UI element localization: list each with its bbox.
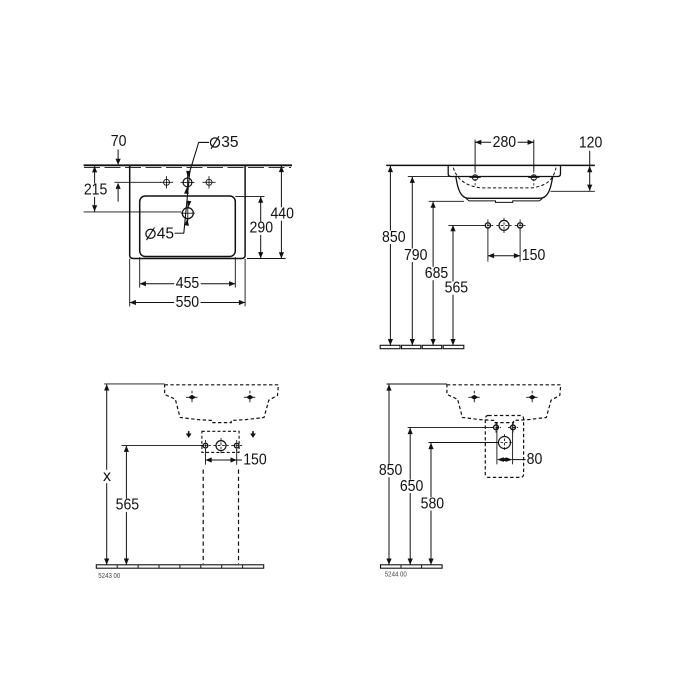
svg-text:45: 45 (157, 225, 174, 242)
svg-text:120: 120 (579, 135, 603, 152)
svg-text:5243 00: 5243 00 (98, 571, 120, 580)
svg-text:790: 790 (404, 247, 428, 264)
svg-text:580: 580 (421, 495, 445, 512)
svg-text:440: 440 (270, 206, 294, 223)
svg-text:215: 215 (84, 182, 108, 199)
svg-text:5244 00: 5244 00 (385, 570, 407, 579)
svg-text:565: 565 (116, 497, 140, 514)
svg-text:565: 565 (445, 280, 469, 297)
svg-text:150: 150 (243, 452, 267, 469)
svg-text:850: 850 (379, 462, 403, 479)
svg-text:35: 35 (221, 134, 238, 151)
svg-text:80: 80 (527, 451, 543, 468)
svg-text:70: 70 (111, 133, 127, 150)
svg-text:150: 150 (522, 247, 546, 264)
svg-text:455: 455 (176, 275, 200, 292)
svg-text:850: 850 (382, 229, 406, 246)
svg-text:290: 290 (250, 220, 274, 237)
svg-text:650: 650 (400, 478, 424, 495)
svg-text:x: x (103, 468, 111, 485)
svg-text:280: 280 (493, 134, 517, 151)
svg-text:550: 550 (176, 294, 200, 311)
